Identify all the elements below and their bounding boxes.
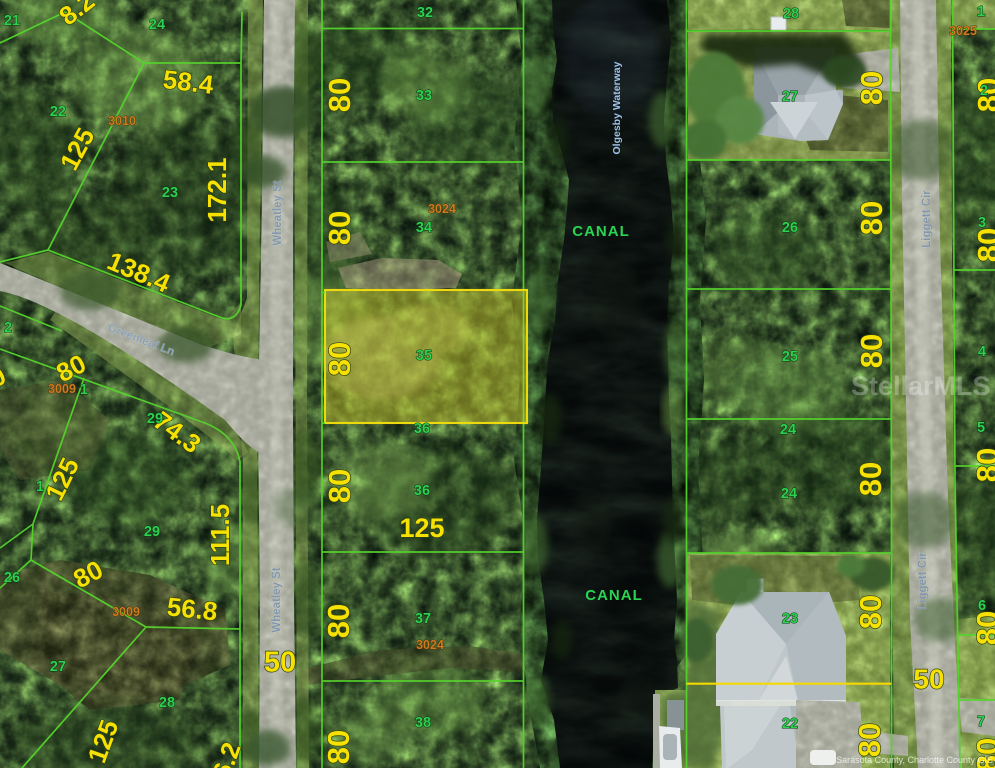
svg-text:25: 25 bbox=[782, 349, 798, 365]
svg-text:Sarasota County, Charlotte Cou: Sarasota County, Charlotte County GIS bbox=[836, 755, 993, 765]
svg-text:3010: 3010 bbox=[108, 114, 136, 128]
svg-text:80: 80 bbox=[322, 78, 357, 112]
svg-text:3024: 3024 bbox=[428, 202, 456, 216]
svg-text:50: 50 bbox=[264, 647, 296, 679]
svg-text:80: 80 bbox=[854, 71, 889, 105]
svg-text:2: 2 bbox=[4, 320, 12, 336]
svg-text:80: 80 bbox=[853, 595, 888, 629]
svg-text:80: 80 bbox=[321, 730, 356, 764]
svg-text:26: 26 bbox=[4, 570, 20, 586]
svg-text:38: 38 bbox=[415, 715, 431, 731]
svg-text:58.4: 58.4 bbox=[161, 64, 215, 100]
svg-text:Liggett Cir: Liggett Cir bbox=[917, 552, 929, 610]
svg-text:56.8: 56.8 bbox=[165, 591, 218, 626]
svg-text:80: 80 bbox=[322, 342, 357, 376]
svg-text:50: 50 bbox=[913, 663, 944, 694]
svg-text:80: 80 bbox=[970, 611, 995, 645]
svg-text:2: 2 bbox=[980, 83, 988, 99]
svg-text:23: 23 bbox=[782, 611, 798, 627]
svg-text:1: 1 bbox=[80, 382, 88, 398]
svg-text:Liggett Cir: Liggett Cir bbox=[921, 190, 933, 248]
svg-text:27: 27 bbox=[50, 659, 66, 675]
svg-text:24: 24 bbox=[781, 486, 797, 502]
svg-text:80: 80 bbox=[854, 201, 889, 235]
svg-text:80: 80 bbox=[322, 211, 357, 245]
svg-text:80: 80 bbox=[970, 448, 995, 482]
svg-text:26: 26 bbox=[782, 220, 798, 236]
svg-text:23: 23 bbox=[162, 185, 178, 201]
svg-text:CANAL: CANAL bbox=[585, 587, 643, 604]
svg-text:80: 80 bbox=[322, 469, 357, 503]
svg-text:80: 80 bbox=[971, 228, 995, 262]
svg-text:172.1: 172.1 bbox=[202, 157, 232, 222]
svg-text:5: 5 bbox=[977, 420, 985, 436]
svg-text:3025: 3025 bbox=[949, 24, 977, 38]
svg-text:3: 3 bbox=[978, 215, 986, 231]
svg-text:80: 80 bbox=[852, 723, 887, 757]
svg-text:Wheatley St: Wheatley St bbox=[272, 180, 284, 245]
svg-text:22: 22 bbox=[782, 716, 798, 732]
svg-text:34: 34 bbox=[416, 220, 432, 236]
svg-text:22: 22 bbox=[50, 104, 66, 120]
svg-text:24: 24 bbox=[149, 17, 165, 33]
svg-text:80: 80 bbox=[854, 334, 889, 368]
svg-text:36: 36 bbox=[414, 421, 430, 437]
svg-text:3009: 3009 bbox=[48, 382, 76, 396]
svg-text:28: 28 bbox=[783, 6, 799, 22]
svg-text:28: 28 bbox=[159, 695, 175, 711]
svg-text:1: 1 bbox=[36, 479, 44, 495]
svg-text:36: 36 bbox=[414, 483, 430, 499]
svg-text:27: 27 bbox=[782, 89, 798, 105]
svg-text:35: 35 bbox=[416, 348, 432, 364]
svg-text:33: 33 bbox=[416, 88, 432, 104]
svg-text:29: 29 bbox=[147, 411, 163, 427]
svg-text:80: 80 bbox=[321, 604, 356, 638]
svg-text:3024: 3024 bbox=[416, 638, 444, 652]
svg-text:CANAL: CANAL bbox=[572, 223, 630, 240]
svg-text:21: 21 bbox=[4, 13, 20, 29]
svg-text:Wheatley St: Wheatley St bbox=[271, 567, 283, 632]
svg-text:StellarMLS: StellarMLS bbox=[851, 371, 991, 401]
svg-text:32: 32 bbox=[417, 5, 433, 21]
svg-text:Olgesby Waterway: Olgesby Waterway bbox=[611, 61, 623, 154]
svg-text:80: 80 bbox=[853, 462, 888, 496]
svg-text:29: 29 bbox=[144, 524, 160, 540]
svg-text:1: 1 bbox=[977, 4, 985, 20]
svg-text:125: 125 bbox=[399, 513, 444, 543]
svg-text:4: 4 bbox=[978, 344, 986, 360]
svg-text:6: 6 bbox=[978, 598, 986, 614]
svg-text:111.5: 111.5 bbox=[205, 504, 235, 566]
svg-text:3009: 3009 bbox=[112, 605, 140, 619]
svg-text:37: 37 bbox=[415, 611, 431, 627]
svg-text:24: 24 bbox=[780, 422, 796, 438]
svg-text:7: 7 bbox=[977, 714, 985, 730]
